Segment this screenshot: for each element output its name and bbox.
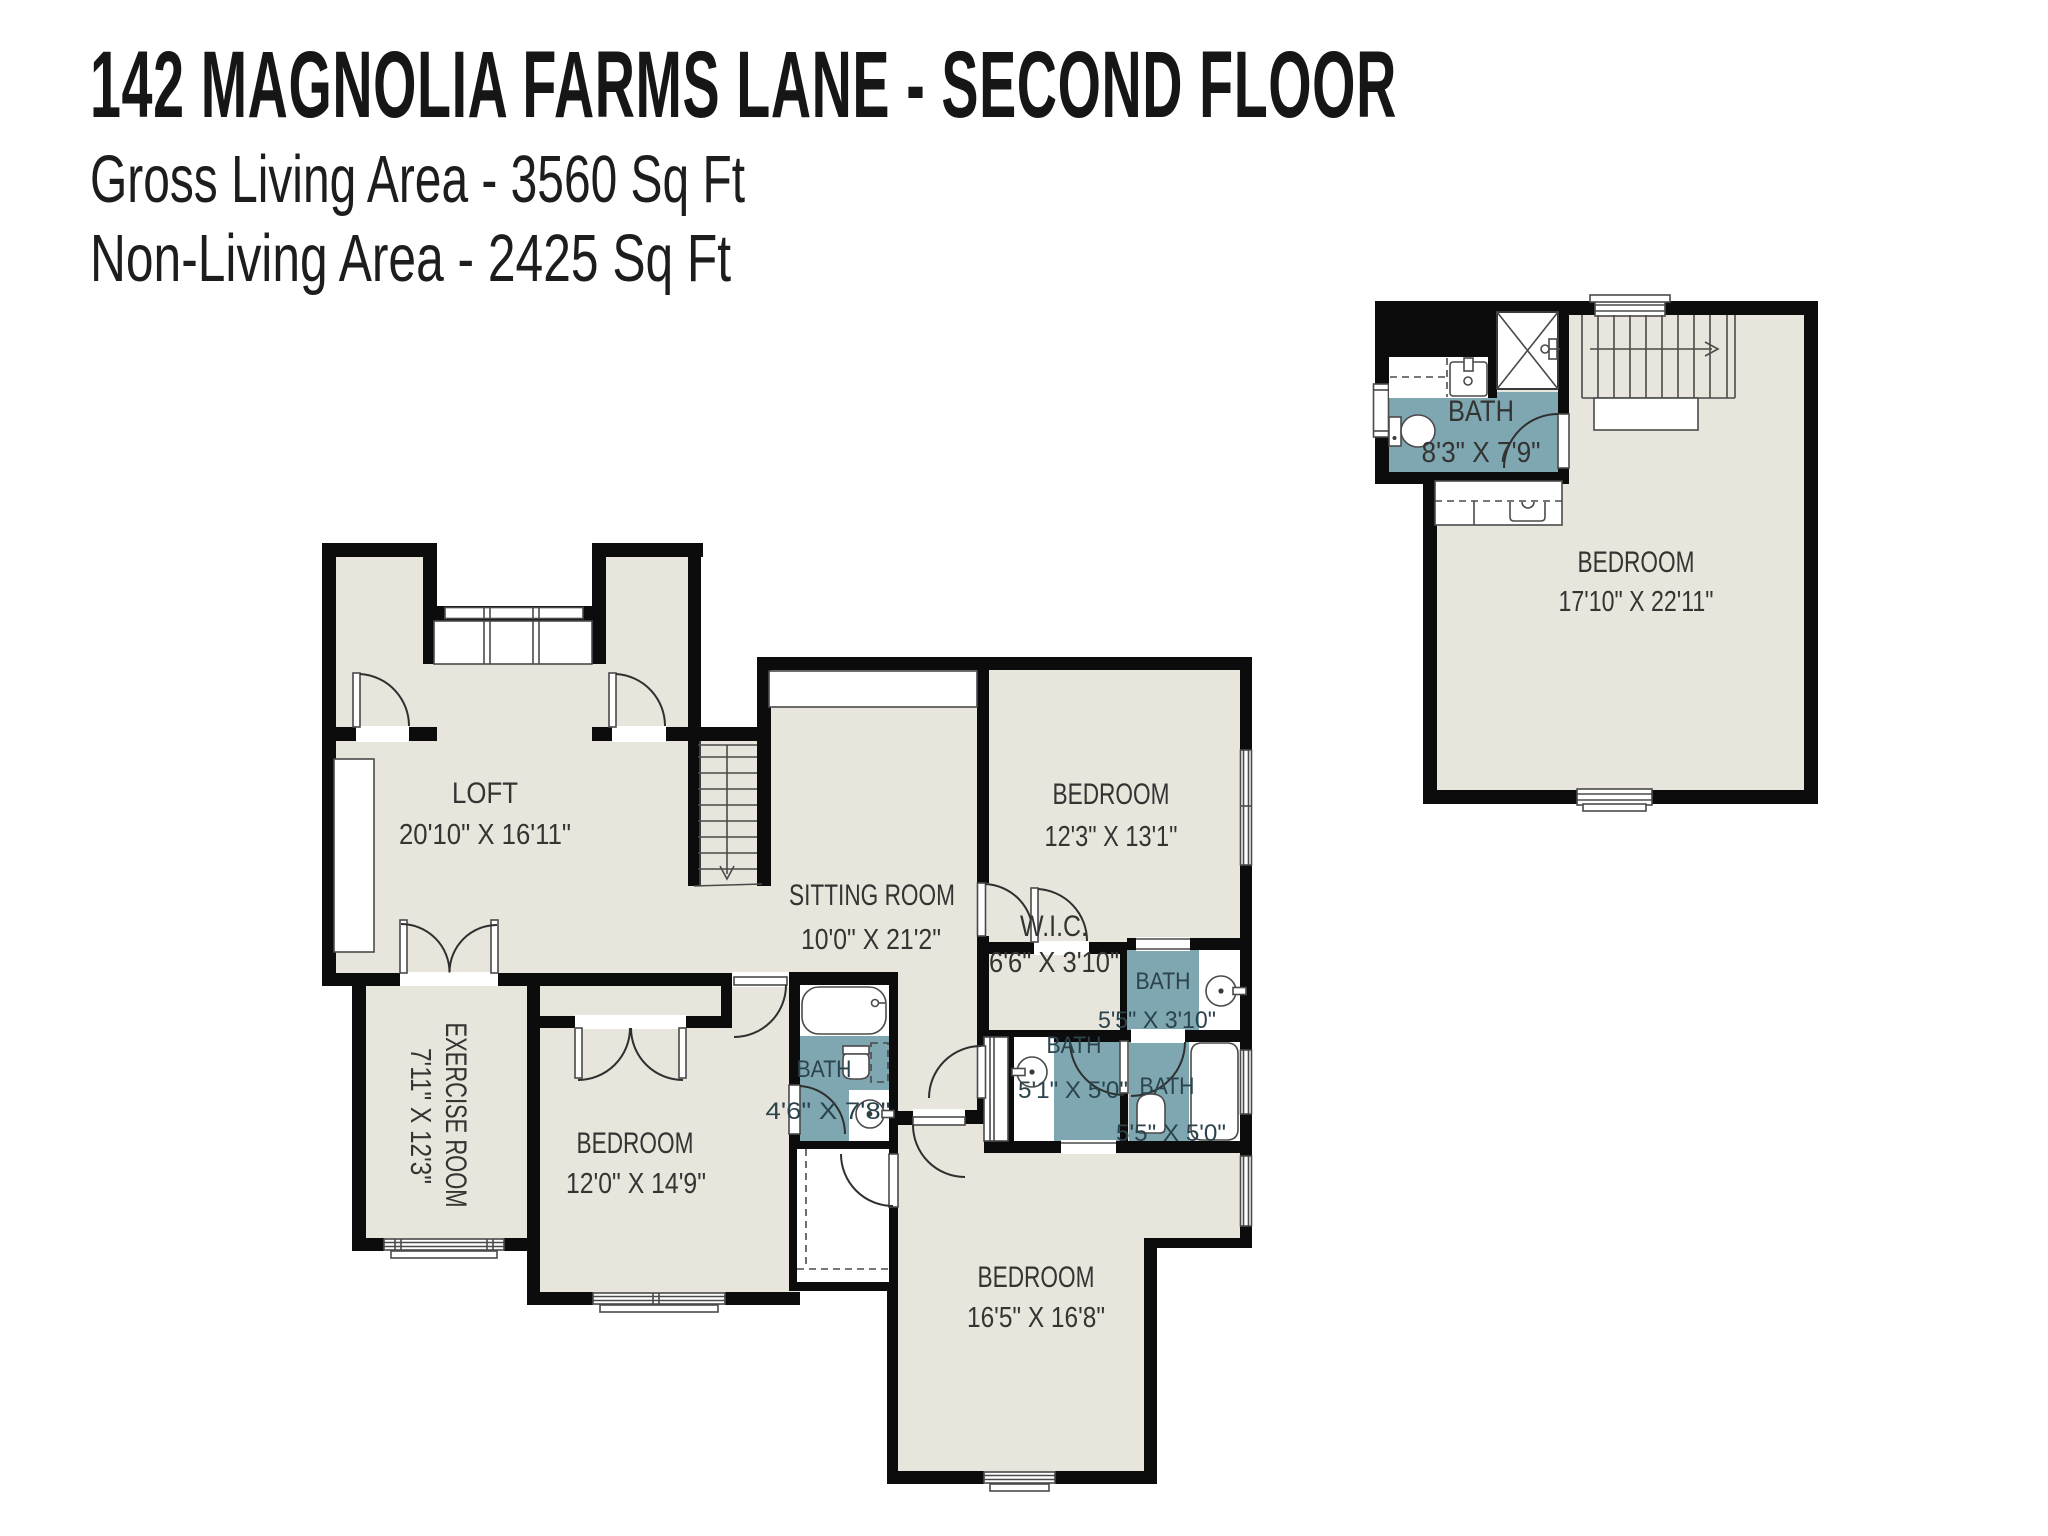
svg-text:8'3" X 7'9": 8'3" X 7'9" bbox=[1422, 437, 1541, 469]
svg-text:BATH: BATH bbox=[1136, 968, 1191, 995]
svg-text:SITTING ROOM: SITTING ROOM bbox=[789, 879, 955, 912]
svg-text:BATH: BATH bbox=[797, 1056, 852, 1083]
svg-text:BEDROOM: BEDROOM bbox=[1578, 546, 1695, 579]
svg-text:EXERCISE ROOM: EXERCISE ROOM bbox=[439, 1023, 472, 1208]
svg-text:20'10" X 16'11": 20'10" X 16'11" bbox=[399, 819, 571, 851]
svg-text:5'5" X 5'0": 5'5" X 5'0" bbox=[1116, 1120, 1226, 1147]
svg-text:10'0" X 21'2": 10'0" X 21'2" bbox=[801, 924, 941, 956]
svg-text:BEDROOM: BEDROOM bbox=[1053, 778, 1170, 811]
svg-text:W.I.C.: W.I.C. bbox=[1020, 910, 1088, 943]
svg-text:BEDROOM: BEDROOM bbox=[577, 1127, 694, 1160]
svg-text:BATH: BATH bbox=[1140, 1073, 1195, 1100]
svg-text:BATH: BATH bbox=[1047, 1032, 1102, 1059]
svg-text:16'5" X 16'8": 16'5" X 16'8" bbox=[967, 1302, 1105, 1334]
svg-text:5'5" X 3'10": 5'5" X 3'10" bbox=[1098, 1007, 1216, 1034]
svg-text:12'0" X 14'9": 12'0" X 14'9" bbox=[566, 1168, 706, 1200]
svg-text:BATH: BATH bbox=[1448, 395, 1514, 428]
svg-text:LOFT: LOFT bbox=[452, 777, 518, 810]
svg-text:6'6" X 3'10": 6'6" X 3'10" bbox=[989, 947, 1119, 979]
svg-text:BEDROOM: BEDROOM bbox=[978, 1261, 1095, 1294]
svg-text:4'6" X 7'8": 4'6" X 7'8" bbox=[766, 1098, 891, 1125]
svg-text:5'1" X 5'0": 5'1" X 5'0" bbox=[1018, 1077, 1128, 1104]
svg-text:17'10" X 22'11": 17'10" X 22'11" bbox=[1559, 586, 1714, 618]
svg-text:7'11" X 12'3": 7'11" X 12'3" bbox=[404, 1048, 436, 1184]
svg-text:12'3" X 13'1": 12'3" X 13'1" bbox=[1045, 821, 1178, 853]
